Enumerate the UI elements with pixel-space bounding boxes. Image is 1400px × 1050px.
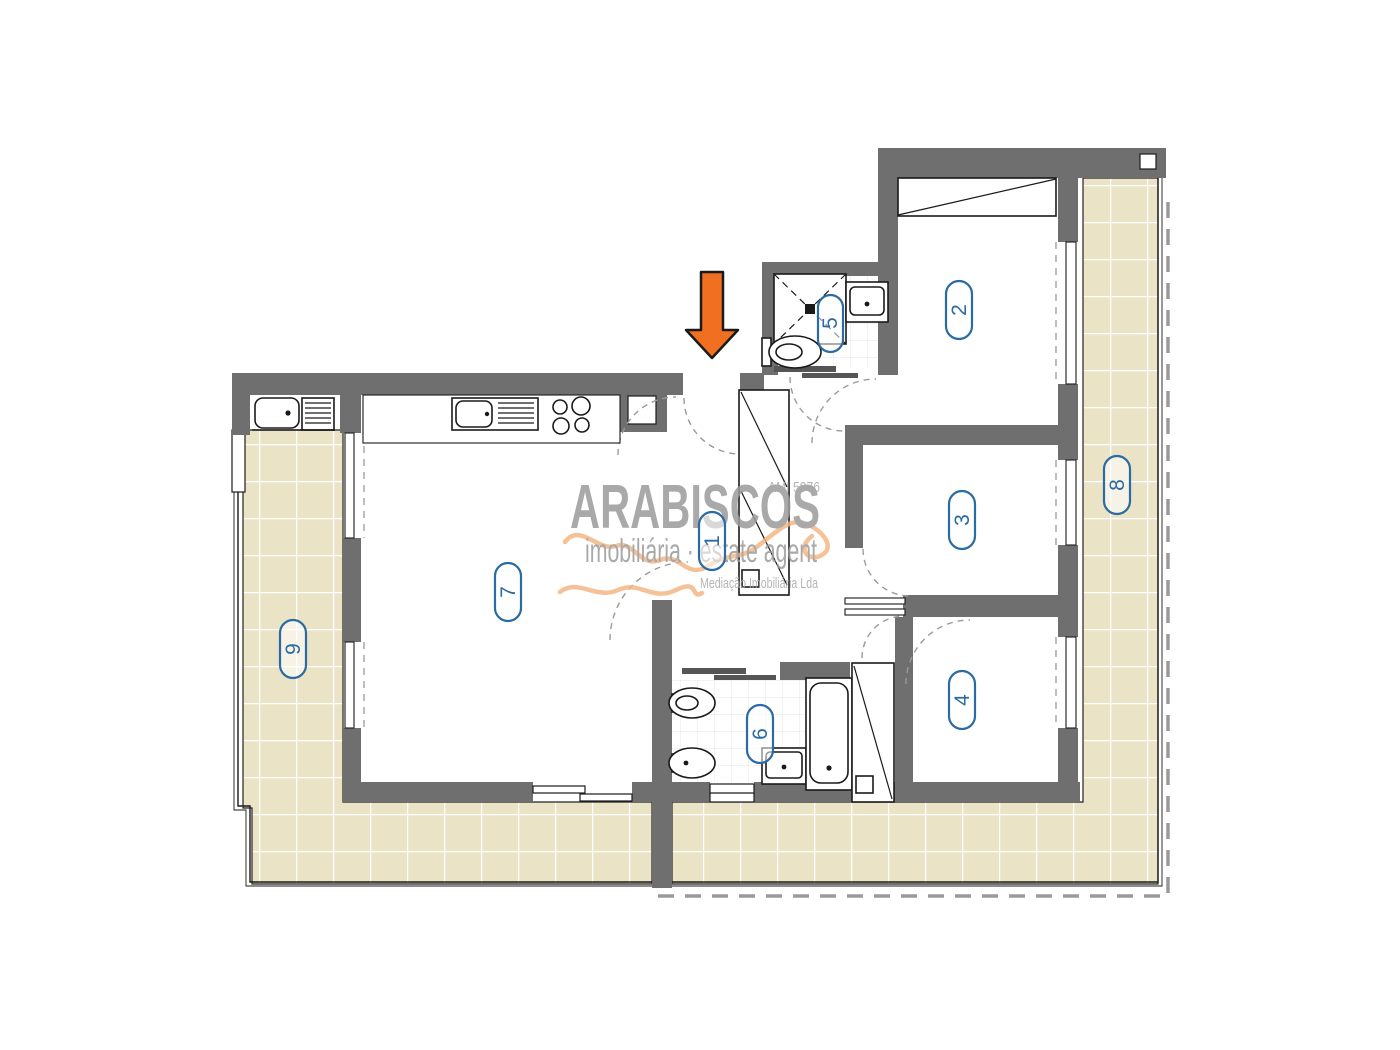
appliance-icon bbox=[302, 398, 334, 430]
window-living-2 bbox=[345, 642, 364, 728]
window-bathroom6 bbox=[710, 784, 754, 802]
pocket-door-bedrooms bbox=[845, 598, 905, 615]
entrance-arrow-icon bbox=[686, 272, 738, 358]
door-arc-bathroom5 bbox=[790, 377, 844, 431]
svg-text:1: 1 bbox=[701, 535, 724, 547]
svg-text:9: 9 bbox=[282, 643, 305, 655]
room-label-bedroom3: 3 bbox=[949, 491, 975, 549]
toilet-icon-bath5 bbox=[762, 336, 821, 368]
door-arc-bedroom3 bbox=[863, 549, 910, 596]
toilet-icon-bath6 bbox=[669, 748, 715, 778]
window-living-1 bbox=[345, 433, 364, 538]
wardrobe-bedroom2 bbox=[898, 178, 1056, 216]
watermark-squiggle-2 bbox=[560, 586, 702, 594]
door-arc-entrance bbox=[684, 398, 740, 454]
window-bedroom2 bbox=[1056, 242, 1076, 384]
closet-bathroom6 bbox=[852, 663, 894, 802]
svg-text:6: 6 bbox=[749, 728, 772, 740]
washbasin-icon-bath5 bbox=[846, 282, 888, 322]
window-bedroom3 bbox=[1056, 460, 1076, 545]
svg-text:8: 8 bbox=[1106, 479, 1129, 491]
room-label-bedroom4: 4 bbox=[949, 671, 975, 729]
window-bedroom4 bbox=[1056, 637, 1076, 728]
svg-text:2: 2 bbox=[948, 304, 971, 316]
door-arc-living bbox=[610, 562, 688, 640]
svg-text:5: 5 bbox=[819, 317, 842, 329]
svg-text:7: 7 bbox=[497, 586, 520, 598]
room-label-terrace-left: 9 bbox=[280, 620, 306, 678]
kitchen-sink-icon bbox=[452, 398, 538, 430]
room-label-bathroom6: 6 bbox=[747, 705, 773, 763]
room-label-bathroom5: 5 bbox=[818, 295, 843, 352]
svg-text:3: 3 bbox=[951, 514, 974, 526]
bidet-icon-bath6 bbox=[669, 688, 715, 718]
room-label-bedroom2: 2 bbox=[946, 281, 972, 339]
room-label-terrace-right: 8 bbox=[1104, 456, 1130, 514]
room-label-hall: 1 bbox=[699, 512, 725, 570]
watermark: AMI 5976 ARABISCOS imobiliária · estate … bbox=[560, 473, 828, 594]
sliding-door-bathroom6 bbox=[682, 668, 776, 680]
room-label-living: 7 bbox=[495, 563, 521, 621]
bathtub-icon bbox=[806, 678, 852, 790]
watermark-tagline: Mediação Imobiliária Lda bbox=[700, 575, 818, 592]
svg-text:4: 4 bbox=[951, 694, 974, 706]
floor-plan-page: AMI 5976 ARABISCOS imobiliária · estate … bbox=[0, 0, 1400, 1050]
sliding-door-living bbox=[533, 786, 632, 801]
utility-sink-icon bbox=[255, 398, 299, 428]
floor-plan-drawing: AMI 5976 ARABISCOS imobiliária · estate … bbox=[0, 0, 1400, 1050]
